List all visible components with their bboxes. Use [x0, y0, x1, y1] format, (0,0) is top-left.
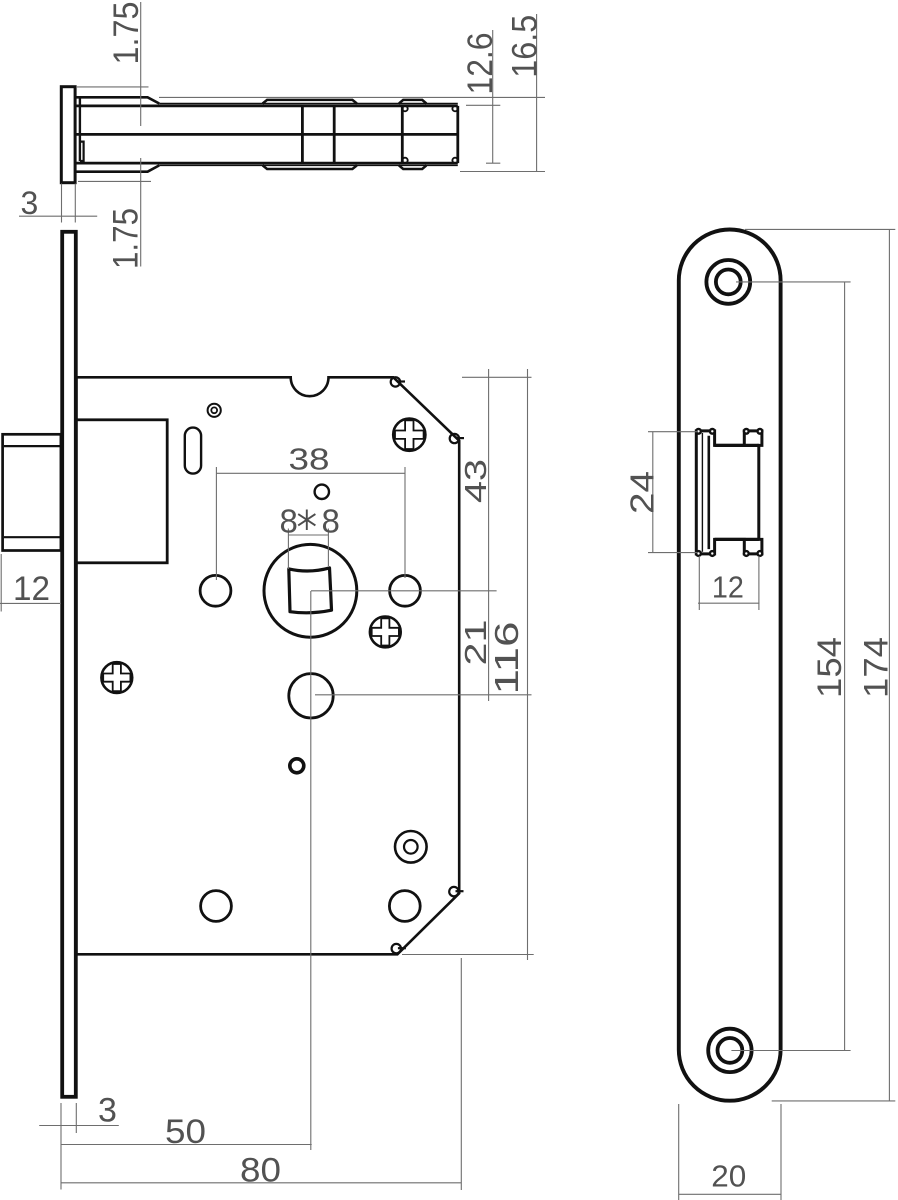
svg-text:80: 80: [240, 1152, 281, 1190]
svg-text:8: 8: [322, 503, 340, 540]
svg-text:24: 24: [624, 471, 661, 514]
svg-text:16.5: 16.5: [506, 15, 545, 78]
svg-text:154: 154: [811, 637, 849, 698]
svg-text:12.6: 12.6: [461, 33, 500, 95]
svg-text:50: 50: [165, 1113, 206, 1151]
svg-text:3: 3: [98, 1092, 117, 1130]
svg-text:20: 20: [711, 1159, 746, 1194]
svg-text:43: 43: [458, 459, 493, 503]
svg-text:174: 174: [858, 637, 896, 698]
svg-text:1.75: 1.75: [107, 208, 146, 269]
svg-text:8: 8: [280, 503, 298, 540]
svg-text:12: 12: [13, 570, 50, 608]
svg-text:38: 38: [289, 442, 330, 477]
svg-text:116: 116: [488, 622, 525, 695]
svg-text:3: 3: [21, 185, 39, 221]
svg-text:12: 12: [712, 570, 744, 605]
svg-text:1.75: 1.75: [107, 2, 146, 65]
